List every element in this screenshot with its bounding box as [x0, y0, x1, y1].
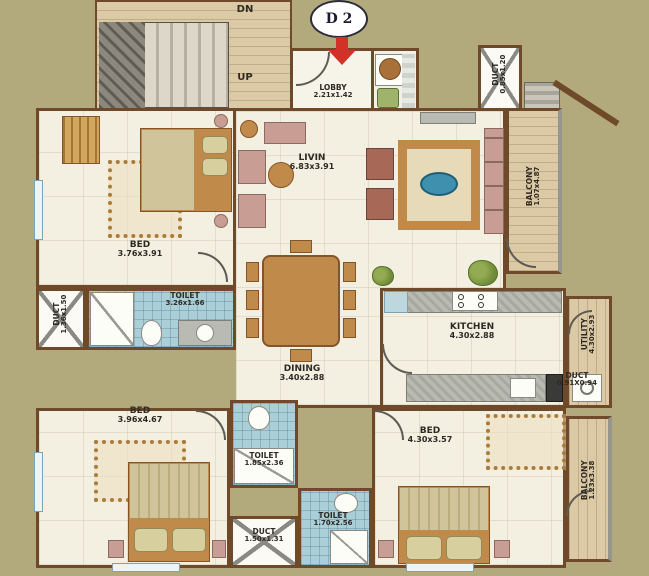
hob-burner: [458, 294, 464, 300]
bed2-nightstand: [212, 540, 226, 558]
dining-chair: [343, 290, 356, 310]
dining-chair: [246, 262, 259, 282]
dining-label: DINING 3.40x2.88: [252, 364, 352, 383]
bed1-lamp: [214, 114, 228, 128]
toilet3-wc: [334, 493, 358, 513]
living-stool: [240, 120, 258, 138]
bed1-wardrobe: [62, 116, 100, 164]
bed2-pillow: [172, 528, 206, 552]
plant: [468, 260, 498, 286]
duct2-label: DUCT 0.91X0.94: [548, 372, 606, 388]
window: [112, 563, 180, 572]
bed3-label: BED 4.30x3.57: [380, 426, 480, 445]
living-center-table: [420, 172, 458, 196]
living-armchair: [366, 148, 394, 180]
bed1-label: BED 3.76x3.91: [90, 240, 190, 259]
toilet3-shower: [330, 530, 368, 564]
bed3-pillow: [446, 536, 482, 560]
toilet1-wc: [141, 320, 162, 346]
toilet3-label: TOILET 1.70x2.56: [298, 512, 368, 528]
bed2-nightstand: [108, 540, 124, 558]
window: [34, 180, 43, 240]
bed1-blanket: [142, 130, 194, 210]
floor-plan: DN UP D 2 LOBBY 2.21x1.42 DUCT 0.85x1.20…: [0, 0, 649, 576]
dining-chair: [246, 318, 259, 338]
bed3-rug: [486, 414, 566, 470]
utility-label: UTILITY 4.30x2.93: [581, 311, 597, 357]
bed1-lamp: [214, 214, 228, 228]
balcony2-label: BALCONY 1.23x3.38: [581, 457, 597, 503]
bed2-pillow: [134, 528, 168, 552]
dining-chair: [343, 318, 356, 338]
bed3-pillow: [406, 536, 442, 560]
bed3-blanket: [400, 488, 488, 530]
kitchen-sink-bottom: [510, 378, 536, 398]
dining-chair: [246, 290, 259, 310]
duct1-label: DUCT 1.36x1.50: [53, 289, 69, 339]
toilet2-label: TOILET 1.85x2.36: [230, 452, 298, 468]
living-armchair: [366, 188, 394, 220]
unit-badge-label: D 2: [326, 11, 353, 27]
living-bench: [264, 122, 306, 144]
kitchen-label: KITCHEN 4.30x2.88: [420, 322, 524, 341]
dining-table: [262, 255, 340, 347]
powder-basin: [379, 58, 401, 80]
window: [34, 452, 43, 512]
duct3-label: DUCT 1.50x1.31: [230, 528, 298, 544]
bed3-nightstand: [378, 540, 394, 558]
staircase-lower-flight: [99, 22, 145, 108]
living-tv-console: [420, 112, 476, 124]
entry-arrow-icon: [336, 37, 348, 50]
toilet1-shower: [90, 292, 134, 346]
living-label: LIVIN 6.83x3.91: [262, 153, 362, 172]
hob-burner: [478, 294, 484, 300]
plant: [372, 266, 394, 286]
powder-tile-strip: [402, 54, 415, 108]
balcony1-label: BALCONY 1.07x4.87: [526, 158, 542, 214]
living-armchair: [238, 194, 266, 228]
diagonal-wall: [552, 80, 619, 126]
powder-wc: [377, 88, 399, 108]
bed3-nightstand: [494, 540, 510, 558]
bed1-pillow: [202, 158, 228, 176]
stairs-dn-label: DN: [231, 4, 259, 15]
living-sofa: [484, 128, 504, 234]
kitchen-sink-top: [384, 291, 408, 313]
window: [406, 563, 474, 572]
hob-burner: [458, 302, 464, 308]
entry-arrow-head-icon: [328, 50, 356, 65]
duct-top-label: DUCT 0.85x1.20: [492, 52, 508, 96]
toilet1-basin: [196, 324, 214, 342]
dining-chair: [290, 240, 312, 253]
dining-chair: [343, 262, 356, 282]
stairs-up-label: UP: [231, 72, 259, 83]
bed2-label: BED 3.96x4.67: [90, 406, 190, 425]
dining-chair: [290, 349, 312, 362]
toilet2-wc: [248, 406, 270, 430]
unit-badge: D 2: [310, 0, 368, 38]
hob-burner: [478, 302, 484, 308]
bed1-pillow: [202, 136, 228, 154]
lobby-label: LOBBY 2.21x1.42: [296, 84, 370, 100]
bed2-blanket: [130, 464, 208, 518]
toilet1-label: TOILET 3.26x1.66: [145, 292, 225, 308]
